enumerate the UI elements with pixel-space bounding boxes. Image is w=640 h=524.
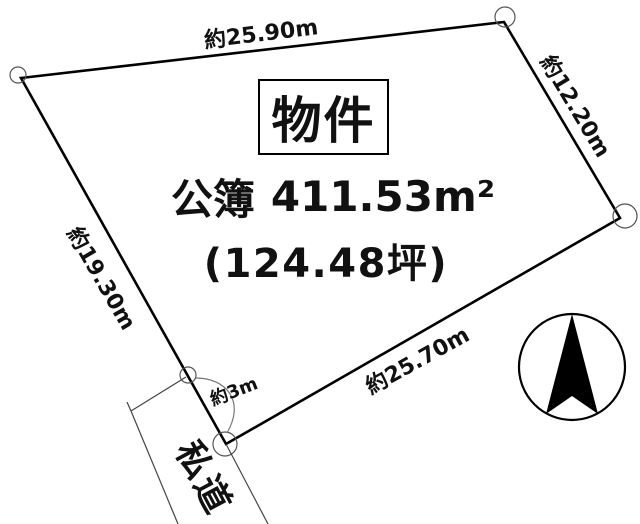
dimension-label-top-edge: 約25.90m [203,14,320,54]
tsubo-value: (124.48坪) [204,241,448,287]
road-boundary-left [127,402,178,524]
dimension-label-left-edge: 約19.30m [61,222,141,334]
vertex-marker-right [613,204,637,228]
area-value: 411.53 [271,172,433,221]
dimension-label-right-edge: 約12.20m [534,51,615,163]
compass-needle [546,314,598,414]
register-type-label: 公簿 [171,166,255,227]
property-title-box: 物件 [258,79,389,155]
vertex-marker-top-left [10,67,26,83]
property-title: 物件 [272,81,376,153]
road-boundary-right [226,444,268,524]
tsubo-area-line: (124.48坪) [146,231,506,275]
road-boundary-top [131,377,186,411]
registered-area-line: 公簿 411.53 m² [153,173,513,219]
north-arrow-icon [519,314,625,420]
area-unit: m² [433,172,495,221]
land-plot-diagram: 約25.90m 約12.20m 約19.30m 約25.70m 約3m 私道 物… [0,0,640,524]
